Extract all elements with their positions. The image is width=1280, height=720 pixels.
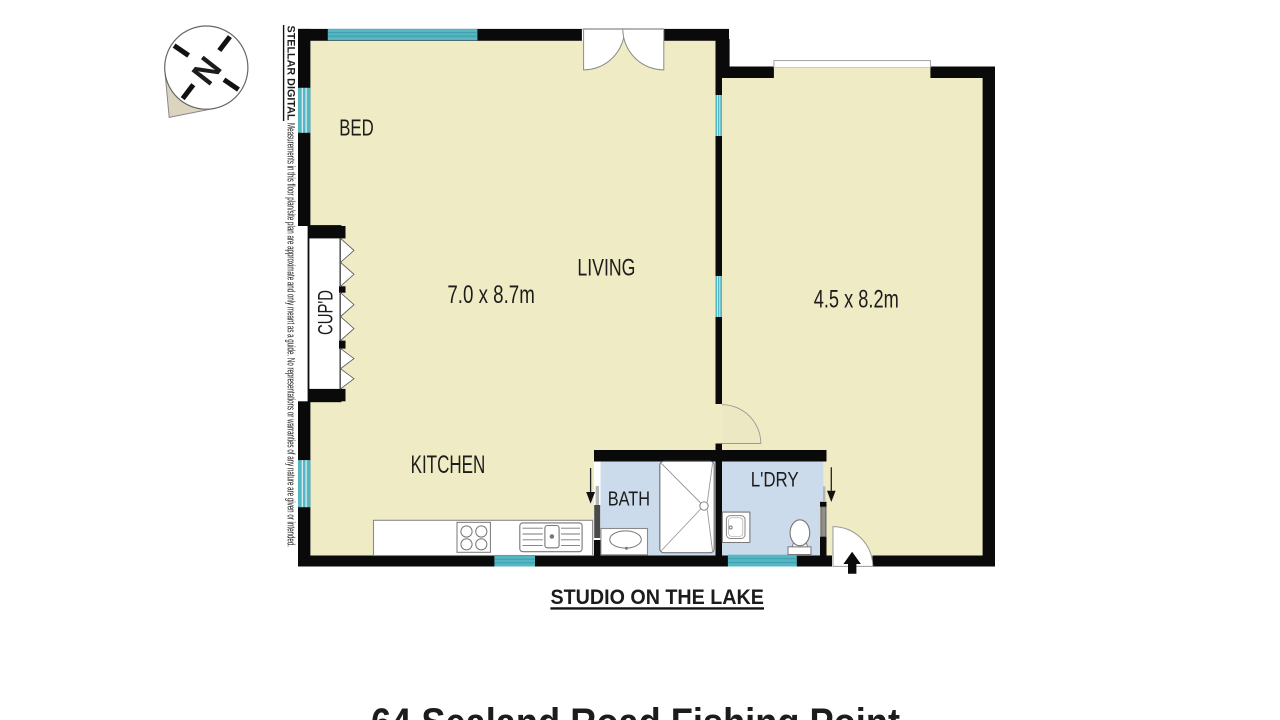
svg-text:STUDIO ON THE LAKE: STUDIO ON THE LAKE xyxy=(551,586,764,609)
svg-text:KITCHEN: KITCHEN xyxy=(411,451,486,479)
svg-text:BATH: BATH xyxy=(608,489,650,511)
svg-text:Measurements in this floor pla: Measurements in this floor plan/site pla… xyxy=(285,123,297,547)
svg-text:BED: BED xyxy=(339,115,374,141)
svg-text:4.5 x 8.2m: 4.5 x 8.2m xyxy=(814,285,899,313)
svg-text:64 Sealand Road Fishing Point: 64 Sealand Road Fishing Point xyxy=(371,701,900,720)
svg-text:L'DRY: L'DRY xyxy=(751,468,799,491)
svg-text:CUP'D: CUP'D xyxy=(315,290,338,335)
svg-text:STELLAR DIGITAL: STELLAR DIGITAL xyxy=(285,26,297,121)
svg-text:LIVING: LIVING xyxy=(577,255,635,282)
svg-text:7.0 x 8.7m: 7.0 x 8.7m xyxy=(447,281,534,309)
